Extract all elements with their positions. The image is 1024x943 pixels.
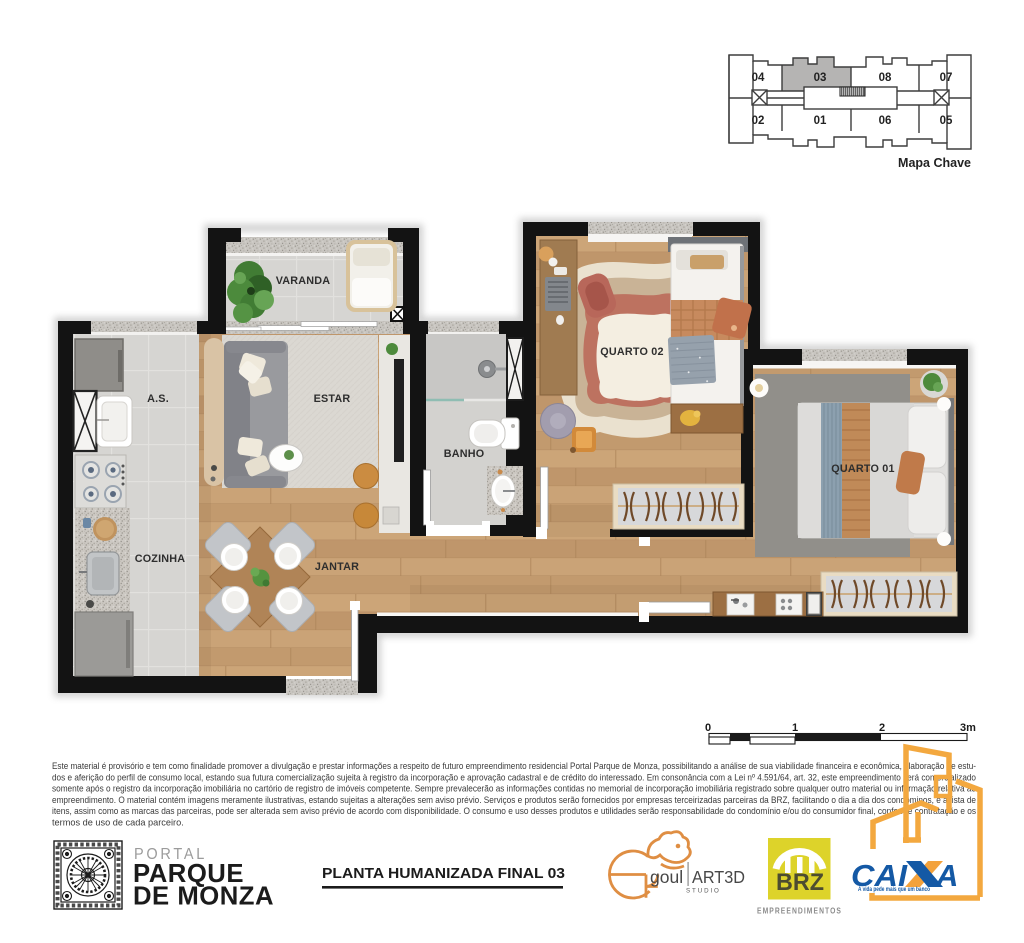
svg-text:termos de uso de cada parceiro: termos de uso de cada parceiro. <box>52 818 184 828</box>
svg-text:A vida pede mais que um banco: A vida pede mais que um banco <box>858 887 930 893</box>
svg-text:JANTAR: JANTAR <box>315 561 359 573</box>
svg-text:02: 02 <box>752 115 765 127</box>
svg-text:01: 01 <box>814 115 827 127</box>
svg-text:empreendimento. O material con: empreendimento. O material contém imagen… <box>52 795 976 805</box>
svg-text:3m: 3m <box>960 722 976 734</box>
svg-text:itens, assim como as marcas da: itens, assim como as marcas das parceira… <box>52 806 976 816</box>
svg-text:DE MONZA: DE MONZA <box>133 883 274 911</box>
svg-text:A.S.: A.S. <box>147 393 169 405</box>
svg-text:0: 0 <box>705 722 711 734</box>
svg-text:1: 1 <box>792 722 798 734</box>
svg-text:Este material é provisório e t: Este material é provisório e tem como fi… <box>52 761 976 771</box>
svg-text:BRZ: BRZ <box>776 869 824 896</box>
svg-text:ART3D: ART3D <box>692 867 745 887</box>
svg-text:BANHO: BANHO <box>444 448 485 460</box>
svg-text:2: 2 <box>879 722 885 734</box>
svg-text:PLANTA HUMANIZADA FINAL 03: PLANTA HUMANIZADA FINAL 03 <box>322 866 565 882</box>
svg-text:05: 05 <box>940 115 953 127</box>
svg-text:06: 06 <box>879 115 892 127</box>
svg-text:dos e aferição do perfil de co: dos e aferição do perfil de consumo loca… <box>52 772 976 782</box>
svg-text:somente após o registro da inc: somente após o registro da incorporação … <box>52 784 976 794</box>
svg-text:EMPREENDIMENTOS: EMPREENDIMENTOS <box>757 907 842 916</box>
svg-text:Mapa Chave: Mapa Chave <box>898 156 971 170</box>
svg-text:VARANDA: VARANDA <box>276 275 331 287</box>
svg-text:goul: goul <box>650 867 683 887</box>
svg-text:07: 07 <box>940 72 953 84</box>
svg-text:04: 04 <box>752 72 765 84</box>
svg-text:STUDIO: STUDIO <box>686 888 721 895</box>
svg-text:COZINHA: COZINHA <box>135 553 186 565</box>
svg-text:QUARTO 02: QUARTO 02 <box>600 346 663 358</box>
svg-text:ESTAR: ESTAR <box>314 393 351 405</box>
svg-text:03: 03 <box>814 72 827 84</box>
svg-text:08: 08 <box>879 72 892 84</box>
svg-text:QUARTO 01: QUARTO 01 <box>831 463 894 475</box>
